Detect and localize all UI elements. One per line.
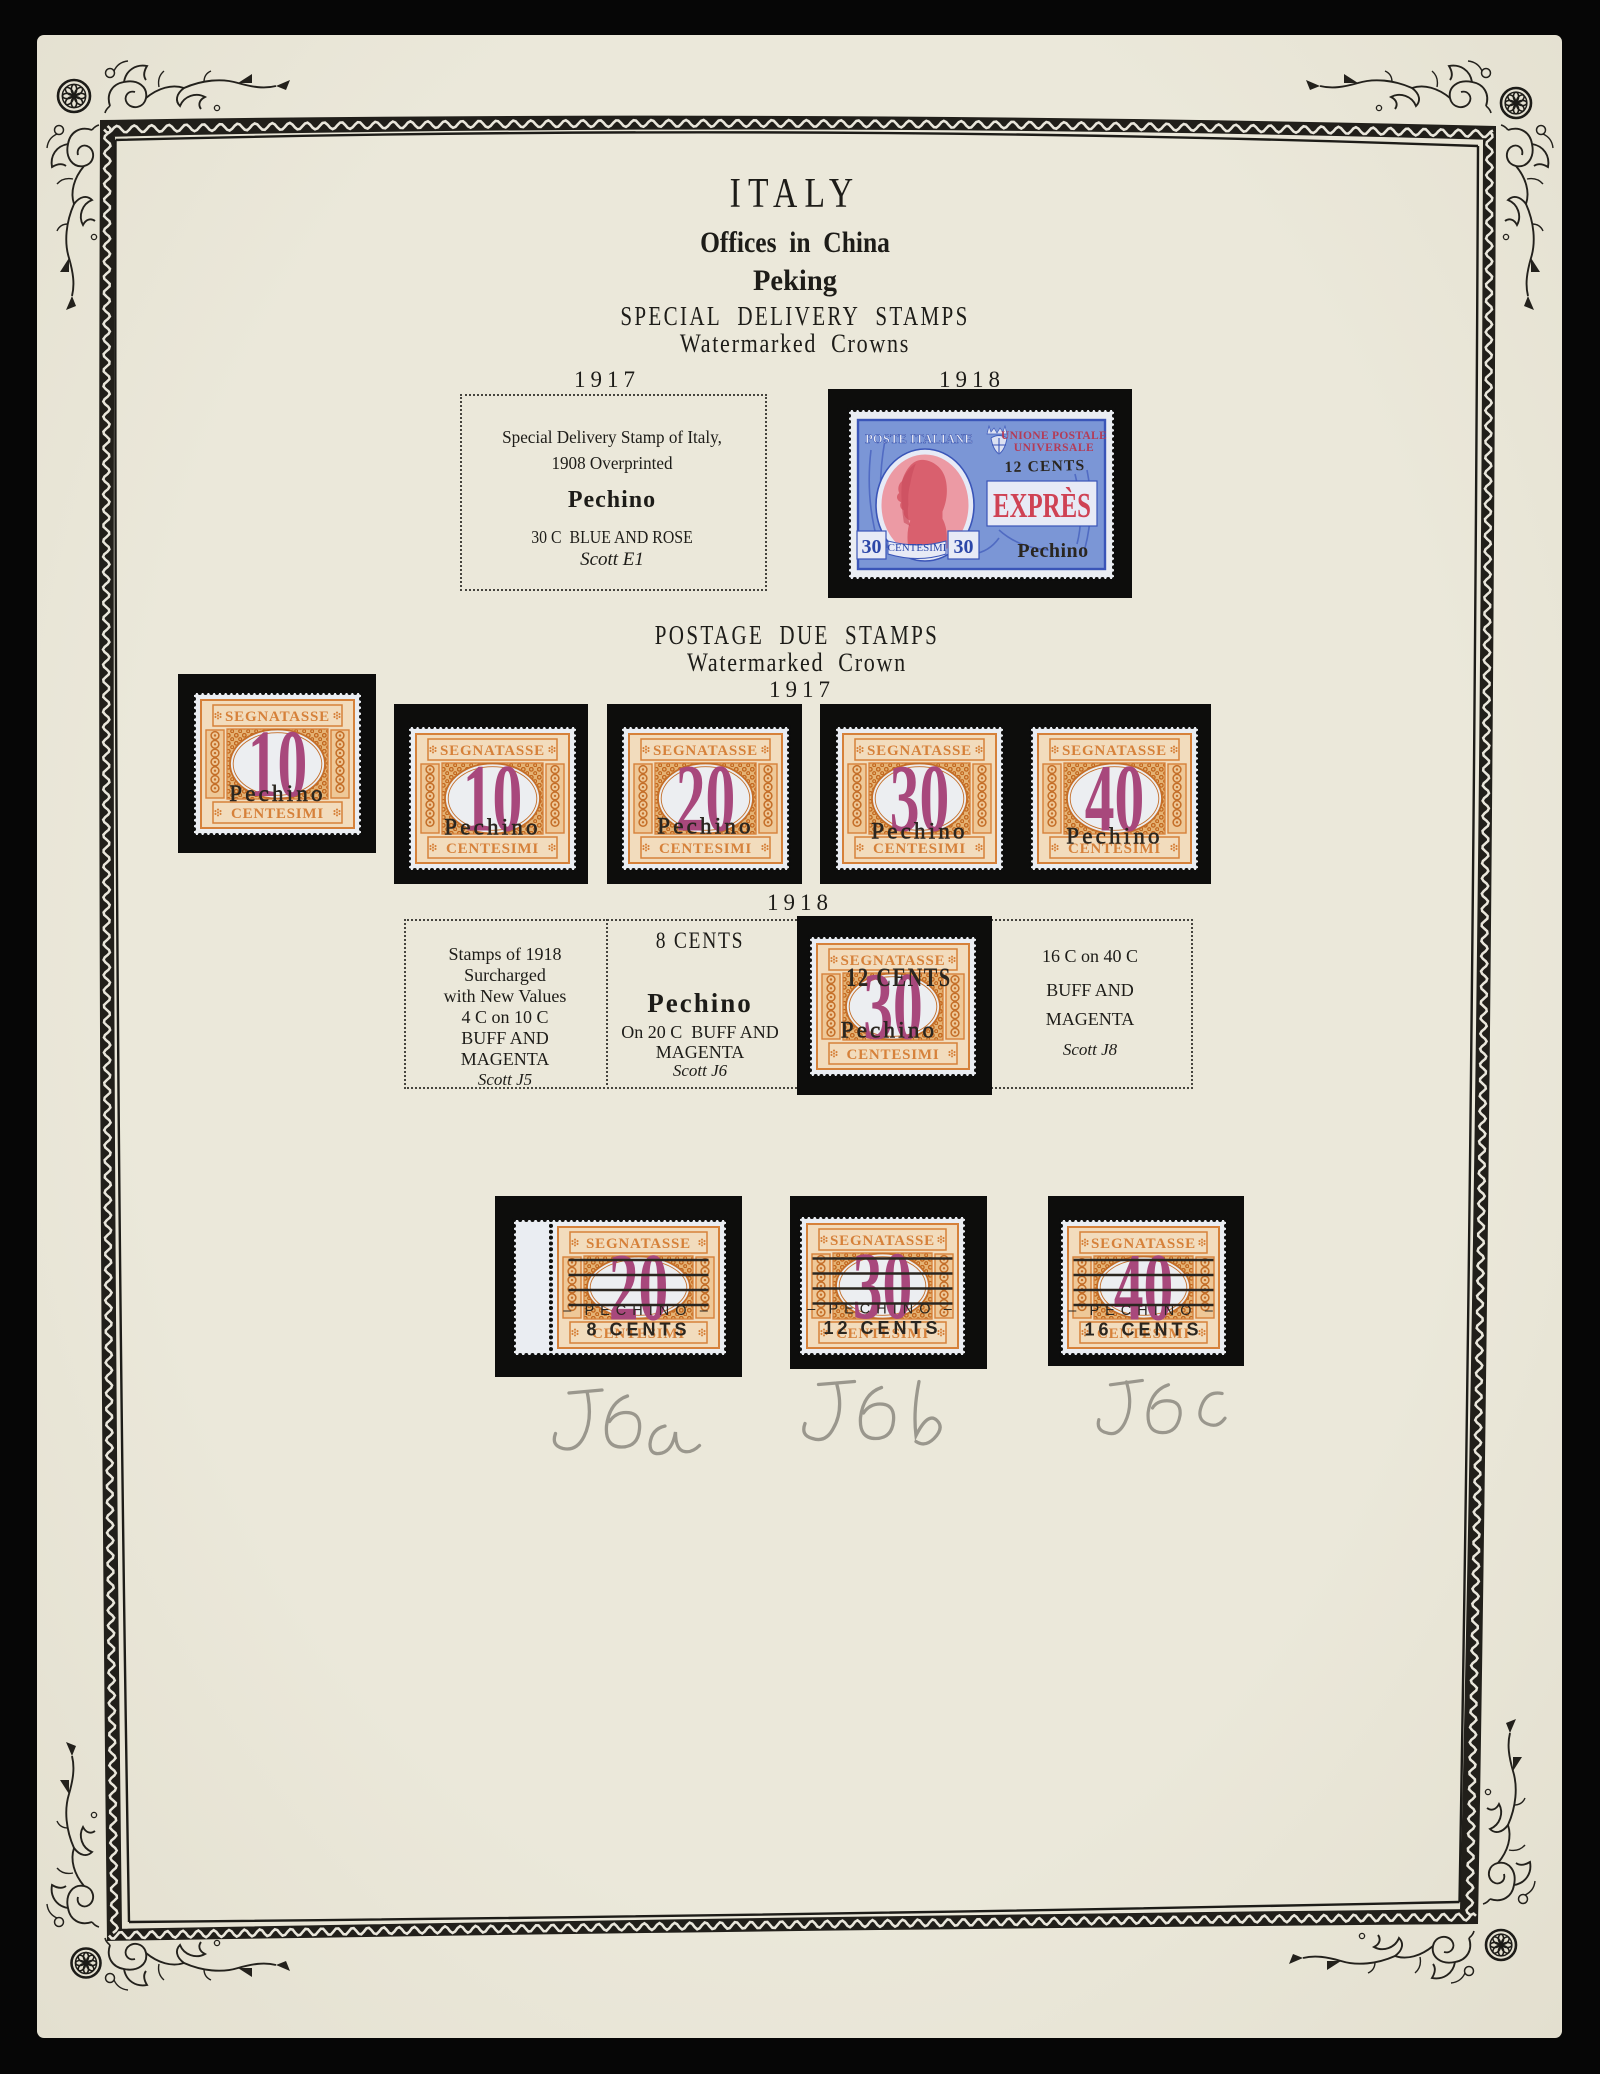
svg-text:Pechino: Pechino xyxy=(1066,824,1163,849)
svg-text:– PECHINO –: – PECHINO – xyxy=(563,1303,714,1319)
svg-text:Pechino: Pechino xyxy=(444,815,541,840)
svg-text:12 CENTS: 12 CENTS xyxy=(846,964,951,993)
svg-text:– PECHINO –: – PECHINO – xyxy=(807,1302,958,1318)
svg-text:UNIVERSALE: UNIVERSALE xyxy=(1014,442,1094,454)
svg-text:Pechino: Pechino xyxy=(871,819,968,844)
svg-text:30: 30 xyxy=(954,536,974,558)
svg-text:– PECHINO –: – PECHINO – xyxy=(1068,1303,1219,1319)
svg-text:Pechino: Pechino xyxy=(229,781,326,806)
svg-text:EXPRÈS: EXPRÈS xyxy=(993,486,1091,525)
svg-text:16 CENTS: 16 CENTS xyxy=(1084,1320,1202,1340)
svg-text:Pechino: Pechino xyxy=(841,1018,938,1043)
svg-text:Pechino: Pechino xyxy=(1017,540,1088,562)
svg-text:12 CENTS: 12 CENTS xyxy=(823,1318,941,1338)
svg-text:CENTESIMI: CENTESIMI xyxy=(888,542,947,554)
svg-text:UNIONE POSTALE: UNIONE POSTALE xyxy=(1001,430,1107,442)
svg-text:8 CENTS: 8 CENTS xyxy=(586,1320,690,1340)
svg-text:POSTE ITALIANE: POSTE ITALIANE xyxy=(865,432,973,446)
svg-text:30: 30 xyxy=(862,536,882,558)
svg-text:12 CENTS: 12 CENTS xyxy=(1004,457,1085,476)
svg-text:Pechino: Pechino xyxy=(657,814,754,839)
